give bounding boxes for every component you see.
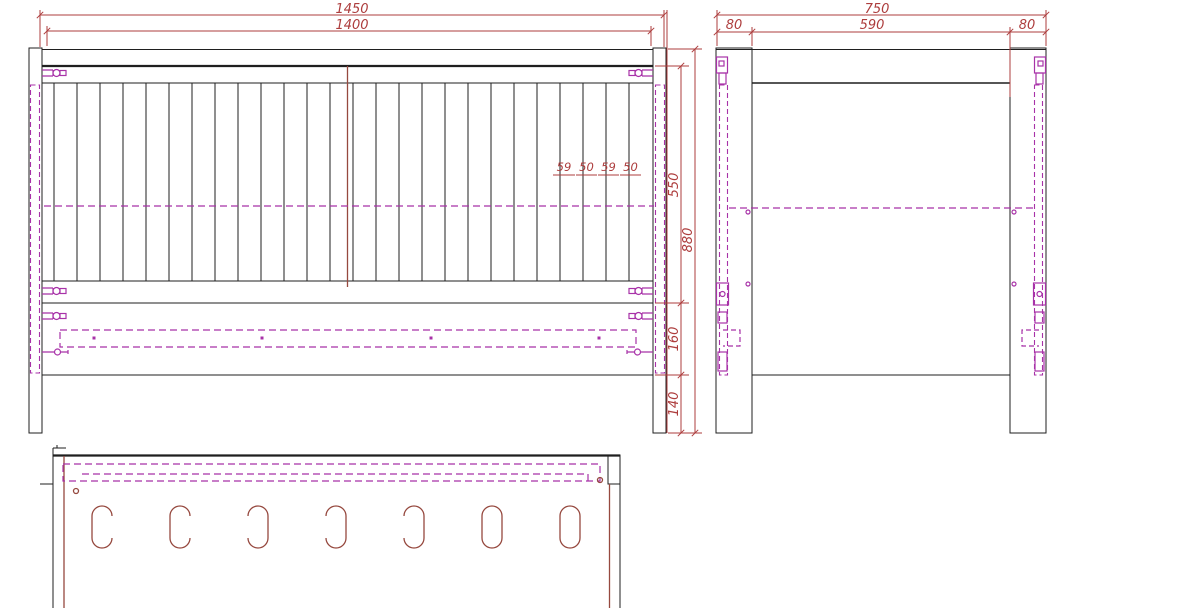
support-dot (93, 337, 96, 340)
plan-dowel-mark-left (74, 489, 79, 494)
slat-dimensions: 59 50 59 50 (553, 160, 641, 175)
slot-cutout (404, 506, 424, 548)
dim-depth-overall: 750 (865, 2, 890, 17)
front-right-dimensions: 550 880 160 140 (655, 10, 702, 433)
support-dot (598, 337, 601, 340)
dim-width-overall: 1450 (335, 2, 368, 17)
slat-dim-3: 59 (601, 160, 616, 174)
slot-cutout (170, 506, 190, 548)
dim-post-front: 80 (726, 18, 743, 33)
side-reference-marks (746, 210, 1016, 286)
bolt-nut (60, 289, 66, 294)
bolt-nut (60, 71, 66, 76)
plan-right-post-block (608, 455, 620, 484)
bolt-head (53, 313, 60, 320)
front-view: 1450 1400 59 50 59 50 550 (29, 2, 702, 433)
slat-dim-4: 50 (623, 160, 638, 174)
dim-depth-inner: 590 (860, 18, 885, 33)
plan-hidden-rail-outer (63, 464, 600, 481)
slot-cutout (482, 506, 502, 548)
bolt-head (635, 349, 641, 355)
cad-drawing-canvas: 1450 1400 59 50 59 50 550 (0, 0, 1200, 608)
bolt-nut (629, 71, 635, 76)
dim-post-back: 80 (1019, 18, 1036, 33)
bottom-view (40, 445, 620, 608)
bolt-head (53, 70, 60, 77)
dim-height-leg: 140 (667, 392, 682, 417)
support-dot (261, 337, 264, 340)
side-right-hidden-channel (1035, 85, 1043, 375)
bolt-nut (629, 314, 635, 319)
dim-height-overall: 880 (681, 228, 696, 253)
slat-dim-1: 59 (557, 160, 572, 174)
plan-slot-cutouts (92, 506, 580, 548)
right-post-hidden-channel (656, 85, 665, 373)
bolt-nut (60, 314, 66, 319)
left-post-hidden-channel (31, 85, 40, 373)
bolt-symbol (642, 70, 653, 76)
slot-cutout (248, 506, 268, 548)
bolt-symbol (642, 288, 653, 294)
dim-height-base-rail: 160 (667, 327, 682, 352)
cad-drawing: 1450 1400 59 50 59 50 550 (0, 0, 1200, 608)
bolt-head (635, 313, 642, 320)
support-bar-hidden-outline (60, 330, 636, 347)
support-bolt-dots (93, 337, 601, 340)
side-left-hidden-channel (720, 85, 728, 375)
slat-dim-2: 50 (579, 160, 594, 174)
dimension-ticks (37, 12, 1049, 436)
bolt-nut (629, 289, 635, 294)
slot-cutout (92, 506, 112, 548)
side-view: 750 80 590 80 (716, 2, 1046, 433)
slat-lines (54, 83, 629, 281)
dim-width-inner: 1400 (335, 18, 368, 33)
bolt-symbol (642, 313, 653, 319)
bolt-head (55, 349, 61, 355)
front-top-dimensions: 1450 1400 (40, 2, 664, 47)
slot-cutout (560, 506, 580, 548)
side-top-cam-fittings (717, 57, 1046, 84)
bolt-symbol (42, 288, 53, 294)
bolt-symbol (42, 70, 53, 76)
slot-cutout (326, 506, 346, 548)
bolt-head (53, 288, 60, 295)
bolt-head (635, 288, 642, 295)
dim-height-panel: 550 (667, 173, 682, 198)
support-dot (430, 337, 433, 340)
bolt-symbol (42, 313, 53, 319)
bolt-head (635, 70, 642, 77)
